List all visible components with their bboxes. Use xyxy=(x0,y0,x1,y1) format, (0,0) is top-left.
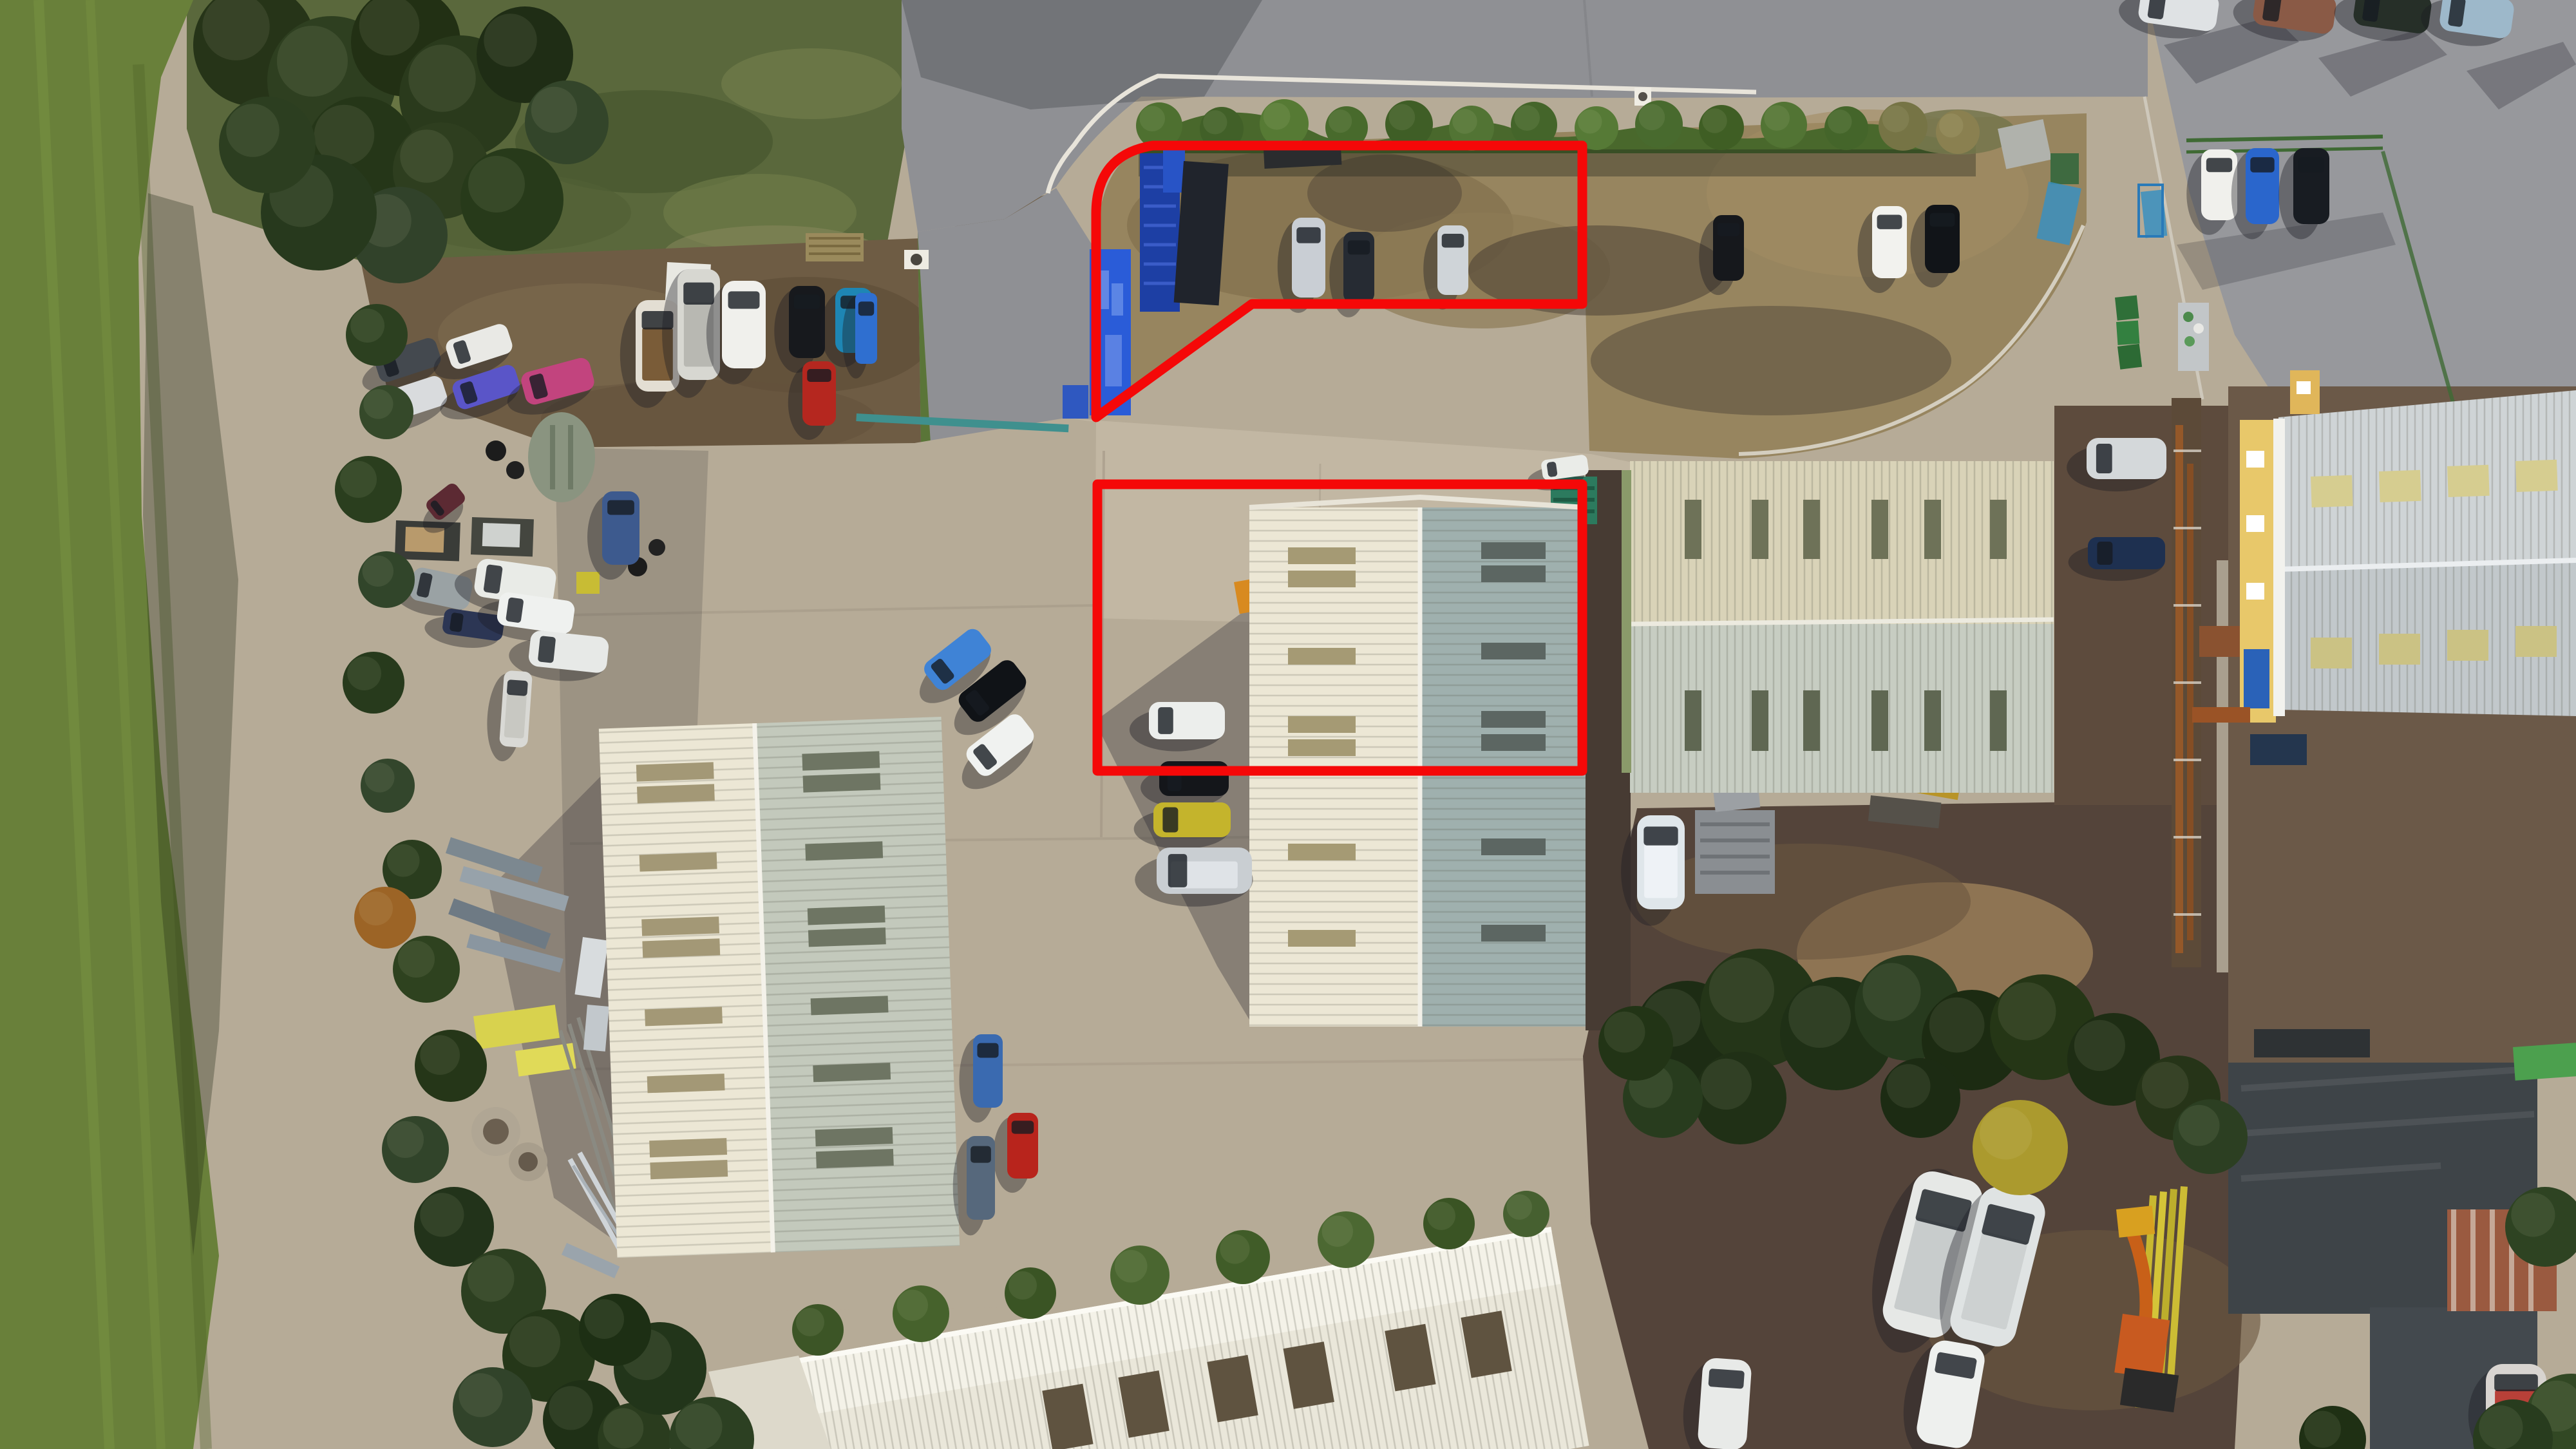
cage-contents xyxy=(2193,323,2204,334)
tree xyxy=(415,1030,487,1102)
tree xyxy=(579,1294,651,1366)
yellow-attachment xyxy=(2116,1206,2155,1238)
dark-clutter xyxy=(2254,1029,2370,1057)
tree xyxy=(1973,1100,2068,1195)
building-d xyxy=(2192,370,2576,723)
tree xyxy=(382,1116,449,1183)
sign-dot xyxy=(911,254,922,265)
white-goods xyxy=(583,1005,609,1052)
tree xyxy=(1936,110,1980,154)
building-d-blue-door xyxy=(2244,649,2269,708)
tree xyxy=(1694,1052,1786,1144)
oval-tank xyxy=(528,412,595,502)
aerial-photo xyxy=(0,0,2576,1449)
blue-rack xyxy=(1163,150,1185,193)
tree xyxy=(1318,1211,1374,1268)
tree xyxy=(335,456,402,523)
tree xyxy=(1598,1006,1673,1081)
tree xyxy=(1761,102,1807,148)
green-roof xyxy=(2513,1043,2576,1081)
tree xyxy=(2173,1099,2248,1174)
tree xyxy=(393,936,460,1003)
building-c xyxy=(1622,461,2054,793)
tree xyxy=(453,1367,533,1447)
tires xyxy=(649,539,665,556)
rusty-beam xyxy=(2192,707,2250,723)
concrete-ring-hole xyxy=(518,1152,538,1171)
tree xyxy=(792,1304,844,1356)
steel-rack-strip xyxy=(2172,398,2201,967)
gravel-shadow xyxy=(1591,306,1951,415)
building-b xyxy=(1249,497,1586,1027)
green-cabinet xyxy=(2050,153,2079,184)
tree xyxy=(893,1285,949,1342)
tree xyxy=(359,385,413,439)
tree xyxy=(361,759,415,813)
green-bin xyxy=(2115,295,2139,320)
skip-contents xyxy=(482,523,520,547)
excavator-tracks xyxy=(2120,1368,2179,1412)
tires xyxy=(486,440,506,461)
tree xyxy=(1005,1267,1056,1319)
tree xyxy=(1216,1230,1270,1284)
yellow-crate xyxy=(576,572,600,594)
tree xyxy=(346,304,408,366)
tree xyxy=(525,80,609,164)
blue-container xyxy=(2250,734,2307,765)
tree xyxy=(1423,1198,1475,1249)
tarp-highlight xyxy=(1112,283,1123,316)
aerial-photo-stage xyxy=(0,0,2576,1449)
green-bin xyxy=(2116,321,2139,345)
tree xyxy=(1824,106,1868,150)
building-d-wall-strip xyxy=(2273,419,2285,716)
tree xyxy=(1880,1058,1960,1138)
tree xyxy=(358,551,415,608)
concrete-ring-hole xyxy=(483,1119,509,1144)
hut-window xyxy=(2297,381,2311,394)
tree xyxy=(219,97,316,193)
cage-contents xyxy=(2184,336,2195,346)
tree xyxy=(1699,105,1744,150)
tree xyxy=(1110,1245,1170,1305)
tree xyxy=(460,148,563,251)
tarp-highlight xyxy=(1105,335,1122,386)
excavator-cab xyxy=(2114,1314,2170,1379)
meadow-patch xyxy=(721,48,902,119)
tires xyxy=(506,461,524,479)
green-bin xyxy=(2117,344,2142,370)
roll-cages xyxy=(2178,303,2209,371)
tree xyxy=(1879,102,1927,151)
manhole-dot xyxy=(1638,92,1647,101)
blue-bits xyxy=(1063,385,1088,419)
tree xyxy=(343,652,404,714)
building-c-west-wall xyxy=(1622,470,1631,773)
cage-contents xyxy=(2183,312,2193,322)
building-a xyxy=(599,717,960,1258)
tree xyxy=(1635,100,1683,148)
tree xyxy=(1503,1191,1549,1237)
dirt-patch xyxy=(1636,844,1971,960)
tree xyxy=(354,887,416,949)
